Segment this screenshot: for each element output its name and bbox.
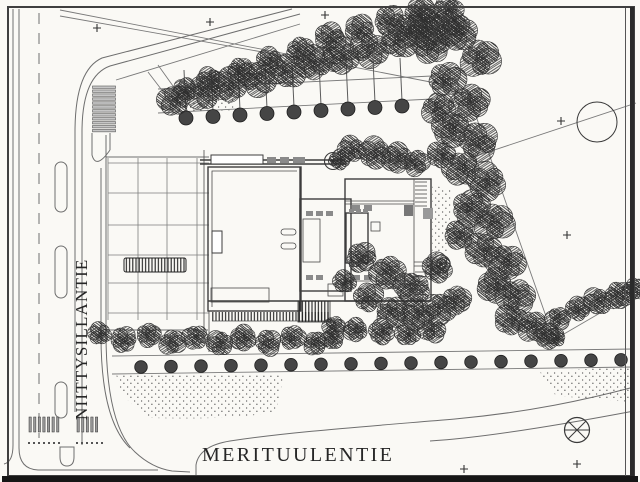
crosswalk-bar: [93, 94, 116, 96]
hedge-bush: [465, 356, 478, 369]
tree-blob: [282, 336, 295, 349]
plus-mark: [557, 117, 565, 125]
stop-dot: [28, 442, 30, 444]
parking-tree: [206, 110, 220, 124]
zebra-bar: [43, 417, 45, 432]
crosswalk-bar: [93, 129, 116, 131]
stop-dot: [58, 442, 60, 444]
hedge-bush: [165, 360, 178, 373]
crosswalk-bar: [93, 106, 116, 108]
zebra-bar: [38, 417, 40, 432]
plus-mark: [573, 460, 581, 468]
tree-blob: [216, 339, 231, 354]
hedge-bush: [555, 354, 568, 367]
stop-dot: [96, 442, 98, 444]
tree-blob: [328, 334, 342, 348]
median-island: [55, 382, 67, 418]
parking-tree: [368, 101, 382, 115]
tree-blob: [193, 326, 206, 339]
zebra-bar: [91, 417, 93, 432]
interior-fixture: [281, 229, 296, 235]
stop-dot: [38, 442, 40, 444]
parking-tree: [233, 108, 247, 122]
tree-blob: [423, 329, 435, 341]
tree-blob: [263, 58, 278, 73]
tree-blob: [408, 25, 421, 38]
stop-dot: [101, 442, 103, 444]
hedge-bush: [405, 357, 418, 370]
tree-blob: [472, 57, 489, 74]
south-stair-hatch: [298, 301, 330, 322]
tree-blob: [430, 265, 448, 283]
hedge-bush: [585, 354, 598, 367]
stop-dot: [86, 442, 88, 444]
tree-blob: [167, 342, 179, 354]
boundary-circle: [577, 102, 617, 142]
tree-blob: [441, 146, 456, 161]
plus-mark: [321, 11, 329, 19]
hedge-bush: [285, 358, 298, 371]
tree-blob: [208, 70, 220, 82]
zebra-bar: [52, 417, 54, 432]
tree-blob: [268, 339, 280, 351]
parking-tree: [314, 104, 328, 118]
crosswalk-bar: [93, 98, 116, 100]
tree-canopy-group: [87, 0, 640, 357]
tree-blob: [381, 35, 400, 54]
tree-blob: [446, 0, 458, 12]
stage-core: [303, 219, 320, 262]
hedge-bush: [315, 358, 328, 371]
site-plan-drawing: NIITTYSILLANTIE MERITUULENTIE: [0, 0, 640, 482]
stop-dot: [48, 442, 50, 444]
plus-mark: [206, 18, 214, 26]
hedge-bush: [495, 355, 508, 368]
tree-blob: [554, 336, 564, 346]
hedge-bush: [525, 355, 538, 368]
stair-core: [404, 205, 413, 216]
tree-blob: [113, 337, 128, 352]
crosswalk-ladder-north: [93, 86, 116, 132]
stop-dot: [33, 442, 35, 444]
stop-dot: [53, 442, 55, 444]
site-plan-canvas: NIITTYSILLANTIE MERITUULENTIE: [0, 0, 640, 482]
zebra-bar: [34, 417, 36, 432]
parking-stall-line: [400, 58, 402, 101]
bench-pergola-bar: [124, 258, 186, 272]
median-island: [55, 162, 67, 212]
street-label-merituulentie: MERITUULENTIE: [202, 444, 394, 466]
tree-blob: [448, 231, 466, 249]
median-island: [55, 246, 67, 298]
crosswalk-bar: [93, 110, 116, 112]
tree-blob: [344, 277, 356, 289]
parking-tree: [287, 105, 301, 119]
zebra-bar: [57, 417, 59, 432]
plus-mark: [563, 231, 571, 239]
stair-core: [423, 208, 433, 219]
parking-tree: [341, 102, 355, 116]
south-hedge-strip: [112, 349, 633, 374]
crosswalk-bar: [93, 122, 116, 124]
parking-tree: [260, 107, 274, 121]
crosswalk-bar: [93, 86, 116, 88]
stop-dot: [81, 442, 83, 444]
paving-grid-plaza: [108, 158, 209, 320]
tree-blob: [478, 136, 495, 153]
tree-blob: [453, 289, 472, 308]
tree-blob: [375, 330, 390, 345]
tree-blob: [361, 296, 377, 312]
plus-mark: [460, 465, 468, 473]
interior-fixture: [281, 243, 296, 249]
tree-blob: [350, 254, 368, 272]
plot-boundary-lines: [92, 133, 209, 336]
dotted-stop-lines: [28, 442, 103, 444]
hedge-bush: [255, 359, 268, 372]
roof-unit: [293, 157, 305, 163]
crosswalk-bar: [93, 102, 116, 104]
hedge-bush: [135, 361, 148, 374]
tree-blob: [397, 284, 412, 299]
tree-blob: [426, 304, 440, 318]
parking-tree: [395, 99, 409, 113]
tree-blob: [572, 308, 585, 321]
roof-unit: [267, 157, 276, 163]
zebra-bar: [47, 417, 49, 432]
tree-blob: [550, 317, 561, 328]
tree-blob: [287, 45, 302, 60]
tree-blob: [335, 159, 346, 170]
tree-blob: [504, 253, 527, 276]
tree-blob: [357, 27, 373, 43]
tree-blob: [378, 17, 396, 35]
median-island-tip: [60, 447, 74, 466]
street-label-niittysillantie: NIITTYSILLANTIE: [72, 258, 91, 420]
tree-blob: [407, 329, 420, 342]
plus-mark: [93, 24, 101, 32]
tree-blob: [414, 161, 426, 173]
tree-blob: [330, 29, 343, 42]
stop-dot: [43, 442, 45, 444]
west-entrance: [212, 231, 222, 253]
canopy-skylight: [211, 155, 263, 164]
tree-blob: [467, 88, 490, 111]
tree-blob: [381, 151, 401, 171]
stop-dot: [91, 442, 93, 444]
tree-blob: [432, 107, 446, 121]
hedge-bush: [195, 360, 208, 373]
hedge-bush: [225, 359, 238, 372]
tree-blob: [237, 63, 254, 80]
crosswalk-bar: [93, 90, 116, 92]
tree-blob: [99, 329, 111, 341]
hedge-bush: [375, 357, 388, 370]
terrace: [211, 288, 269, 302]
zebra-bar: [29, 417, 31, 432]
roof-unit: [280, 157, 289, 163]
hedge-bush: [435, 356, 448, 369]
stop-dot: [76, 442, 78, 444]
zebra-bar: [95, 417, 97, 432]
tree-blob: [230, 332, 247, 349]
tree-blob: [354, 44, 370, 60]
hedge-bush: [345, 358, 358, 371]
crosswalk-bar: [93, 118, 116, 120]
tree-blob: [183, 88, 195, 100]
crosswalk-bar: [93, 126, 116, 128]
tree-blob: [146, 326, 162, 342]
crosswalk-bar: [93, 114, 116, 116]
column-detail: [371, 222, 380, 231]
tree-blob: [416, 41, 439, 64]
